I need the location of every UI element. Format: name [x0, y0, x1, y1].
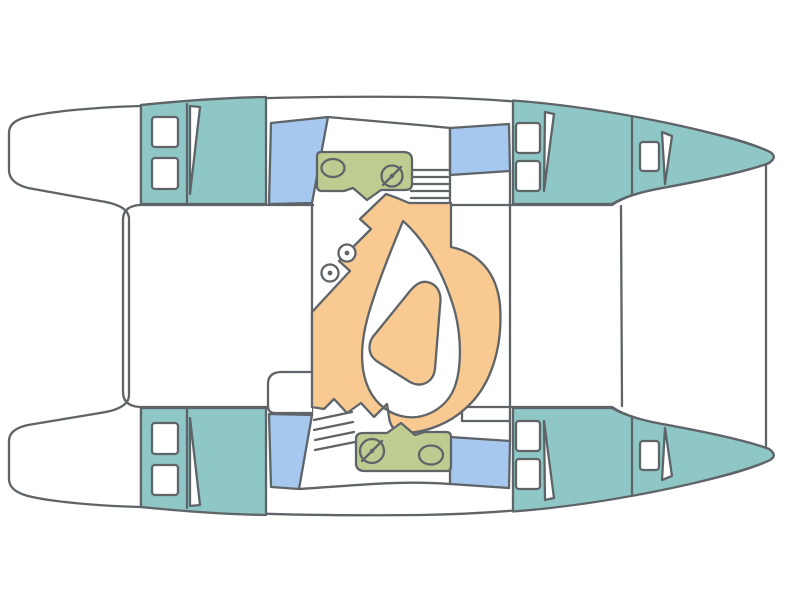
saloon-window [450, 124, 510, 175]
deck-hatch [516, 421, 540, 451]
deck-plan-drawing [0, 0, 800, 600]
stool-center-dot [328, 271, 333, 276]
deck-hatch [152, 117, 178, 147]
deck-hatch [640, 441, 659, 470]
dinette-seating [312, 194, 500, 433]
burner-center-dot [370, 449, 374, 453]
deck-hatch [152, 423, 178, 454]
deck-hatch [152, 158, 178, 189]
saloon-table [369, 282, 440, 385]
deck-hatch [516, 161, 540, 191]
burner-center-dot [390, 174, 394, 178]
cockpit-module [268, 372, 312, 413]
sink-icon [419, 446, 443, 465]
transom-step-wings [9, 106, 141, 507]
cockpit-aft-edge [123, 205, 140, 407]
deck-hatch [640, 142, 659, 171]
catamaran-deck-plan [0, 0, 800, 600]
sink-icon [322, 159, 345, 177]
deck-hatch [516, 459, 540, 489]
saloon-window [450, 437, 510, 488]
deck-hatch [516, 123, 540, 153]
foredeck-front-line [621, 206, 622, 406]
plan-root [9, 97, 774, 515]
deck-hatch [152, 465, 178, 495]
stool-center-dot [345, 251, 350, 256]
